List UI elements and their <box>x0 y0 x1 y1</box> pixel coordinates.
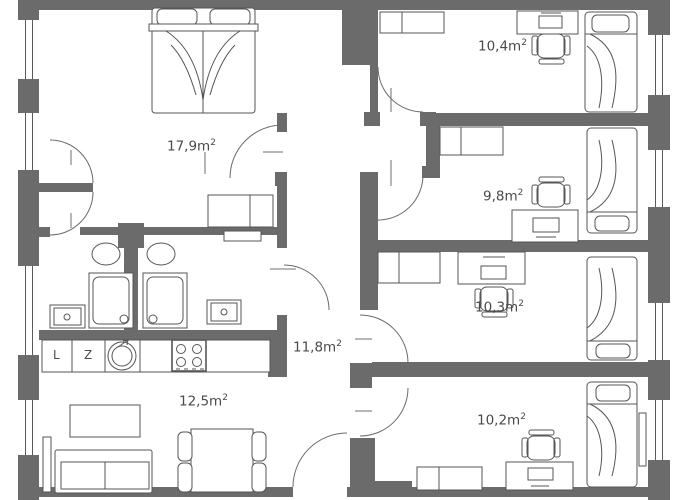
area-sup: 2 <box>210 138 216 148</box>
area-label-room-mid-right: 9,8m2 <box>483 188 523 205</box>
wardrobe <box>378 252 440 283</box>
plan-drawing <box>0 0 700 500</box>
chair-back <box>529 430 554 435</box>
wardrobe <box>380 12 444 33</box>
toilet <box>92 243 120 265</box>
toilet <box>147 243 175 265</box>
desk <box>517 11 578 34</box>
door-threshold <box>224 231 261 241</box>
floor-plan: 17,9m2 10,4m2 9,8m2 10,3m2 11,8m2 12,5m2… <box>0 0 700 500</box>
chair-back <box>539 59 564 64</box>
chair-back <box>539 177 564 182</box>
coffee-table <box>70 405 140 437</box>
kitchen-counter <box>42 340 270 372</box>
area-sup: 2 <box>336 339 342 349</box>
area-value: 10,2m <box>477 413 520 429</box>
bed-headboard <box>149 24 258 31</box>
desk-chair <box>537 183 565 207</box>
door-arc-entry <box>293 433 347 487</box>
sideboard <box>43 437 51 492</box>
desk-chair <box>527 436 555 460</box>
door-arc-room-98 <box>378 175 423 220</box>
dining-chair <box>178 432 192 461</box>
cabinet <box>417 467 482 490</box>
area-label-room-top-right: 10,4m2 <box>478 38 527 55</box>
area-value: 12,5m <box>179 394 222 410</box>
shower <box>143 273 187 328</box>
room-bottom-right-furniture <box>417 382 646 490</box>
pillow <box>210 9 250 25</box>
pillow <box>157 9 197 25</box>
area-value: 11,8m <box>293 340 336 356</box>
fridge-label: L <box>53 348 60 362</box>
area-value: 10,4m <box>478 39 521 55</box>
dining-chair <box>252 432 266 461</box>
stove <box>172 340 206 371</box>
area-sup: 2 <box>222 393 228 403</box>
single-bed <box>587 257 637 360</box>
bedroom-large-furniture <box>149 8 273 241</box>
wardrobe <box>440 127 503 155</box>
area-sup: 2 <box>520 412 526 422</box>
dishwasher-label: Z <box>84 348 92 362</box>
dining-table <box>191 429 253 492</box>
single-bed <box>587 128 637 233</box>
room-top-right-furniture <box>380 11 637 112</box>
radiator <box>639 413 646 466</box>
area-label-bedroom-large: 17,9m2 <box>167 138 216 155</box>
dining-chair <box>178 463 192 492</box>
area-value: 9,8m <box>483 189 518 205</box>
door-arc-room-102 <box>360 388 408 436</box>
dining-chair <box>252 463 266 492</box>
area-value: 17,9m <box>167 139 210 155</box>
area-label-hallway: 11,8m2 <box>293 339 342 356</box>
area-label-room-lower-right: 10,3m2 <box>475 299 524 316</box>
living-room-furniture <box>43 405 266 493</box>
desk-chair <box>537 34 565 58</box>
area-value: 10,3m <box>475 300 518 316</box>
bathroom-fixtures <box>50 243 241 328</box>
kitchen-counter-group <box>42 340 270 372</box>
area-label-room-bottom-right: 10,2m2 <box>477 412 526 429</box>
sink <box>207 300 241 324</box>
door-arc-room-104 <box>378 67 423 112</box>
bench <box>208 195 273 227</box>
room-mid-right-furniture <box>440 127 637 242</box>
sofa <box>55 450 152 493</box>
door-arc-bathroom-2 <box>284 265 329 310</box>
area-sup: 2 <box>521 38 527 48</box>
area-label-living-kitchen: 12,5m2 <box>179 393 228 410</box>
area-sup: 2 <box>518 188 524 198</box>
shower <box>89 273 133 328</box>
area-sup: 2 <box>518 299 524 309</box>
